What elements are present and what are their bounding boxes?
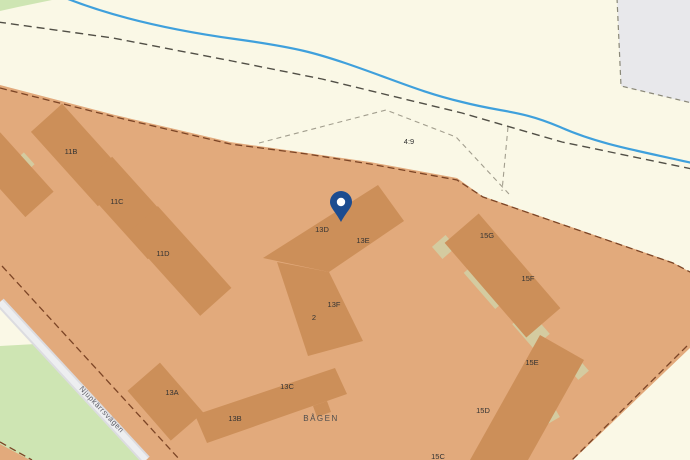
- map-canvas[interactable]: 11B 11C 11D 13D 13E 13F 2 13A 13B 13C BÅ…: [0, 0, 690, 460]
- label-13c: 13C: [280, 382, 294, 391]
- label-11d: 11D: [156, 249, 170, 258]
- label-11c: 11C: [110, 197, 124, 206]
- label-2: 2: [312, 313, 316, 322]
- label-15c: 15C: [431, 452, 445, 460]
- label-15d: 15D: [476, 406, 490, 415]
- label-13d: 13D: [315, 225, 329, 234]
- gray-parcel-area: [617, 0, 690, 103]
- label-15g: 15G: [480, 231, 494, 240]
- label-13a: 13A: [165, 388, 178, 397]
- label-15f: 15F: [522, 274, 535, 283]
- label-11b: 11B: [65, 147, 78, 156]
- label-13b: 13B: [228, 414, 241, 423]
- label-13f: 13F: [328, 300, 341, 309]
- label-15e: 15E: [525, 358, 538, 367]
- label-13e: 13E: [356, 236, 369, 245]
- label-parcel-4-9: 4:9: [404, 137, 414, 146]
- label-block-bagen: BÅGEN: [303, 414, 339, 423]
- map-pin-hole: [337, 198, 345, 206]
